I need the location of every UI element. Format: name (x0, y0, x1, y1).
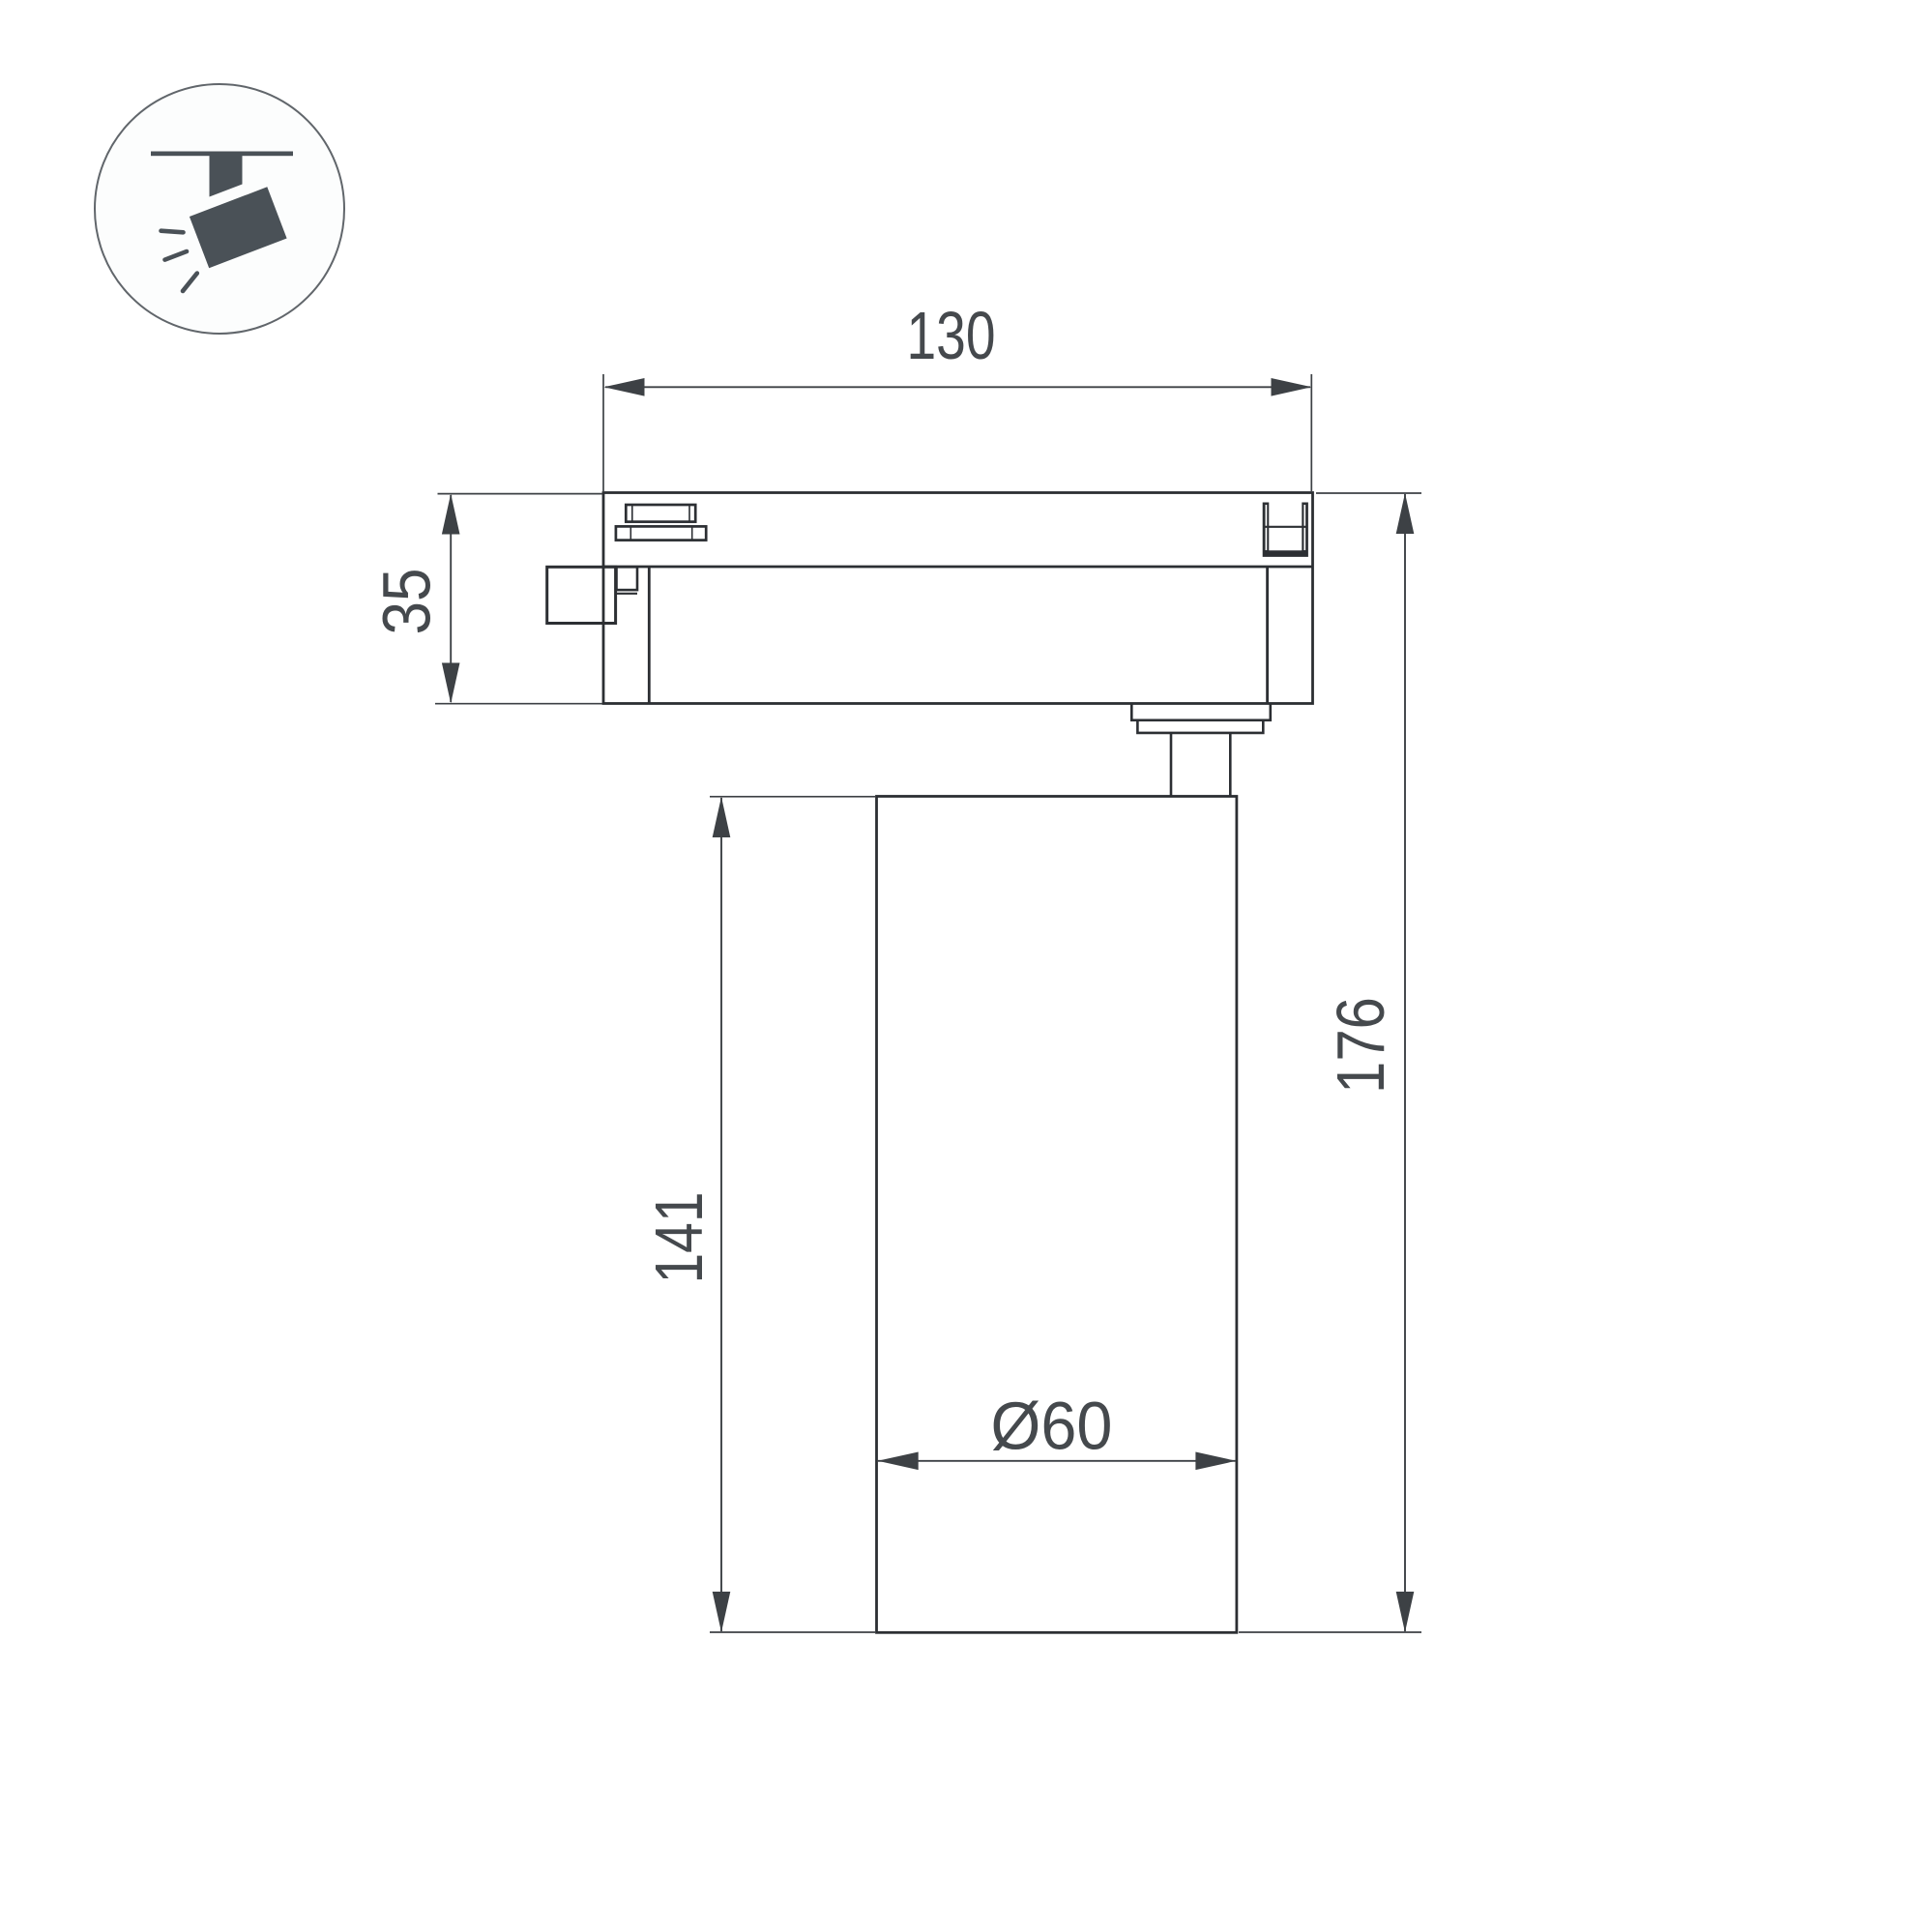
svg-text:176: 176 (1323, 997, 1398, 1094)
svg-text:35: 35 (369, 569, 445, 635)
svg-text:Ø60: Ø60 (991, 1389, 1113, 1464)
svg-text:141: 141 (641, 1192, 717, 1284)
svg-text:130: 130 (907, 298, 996, 373)
